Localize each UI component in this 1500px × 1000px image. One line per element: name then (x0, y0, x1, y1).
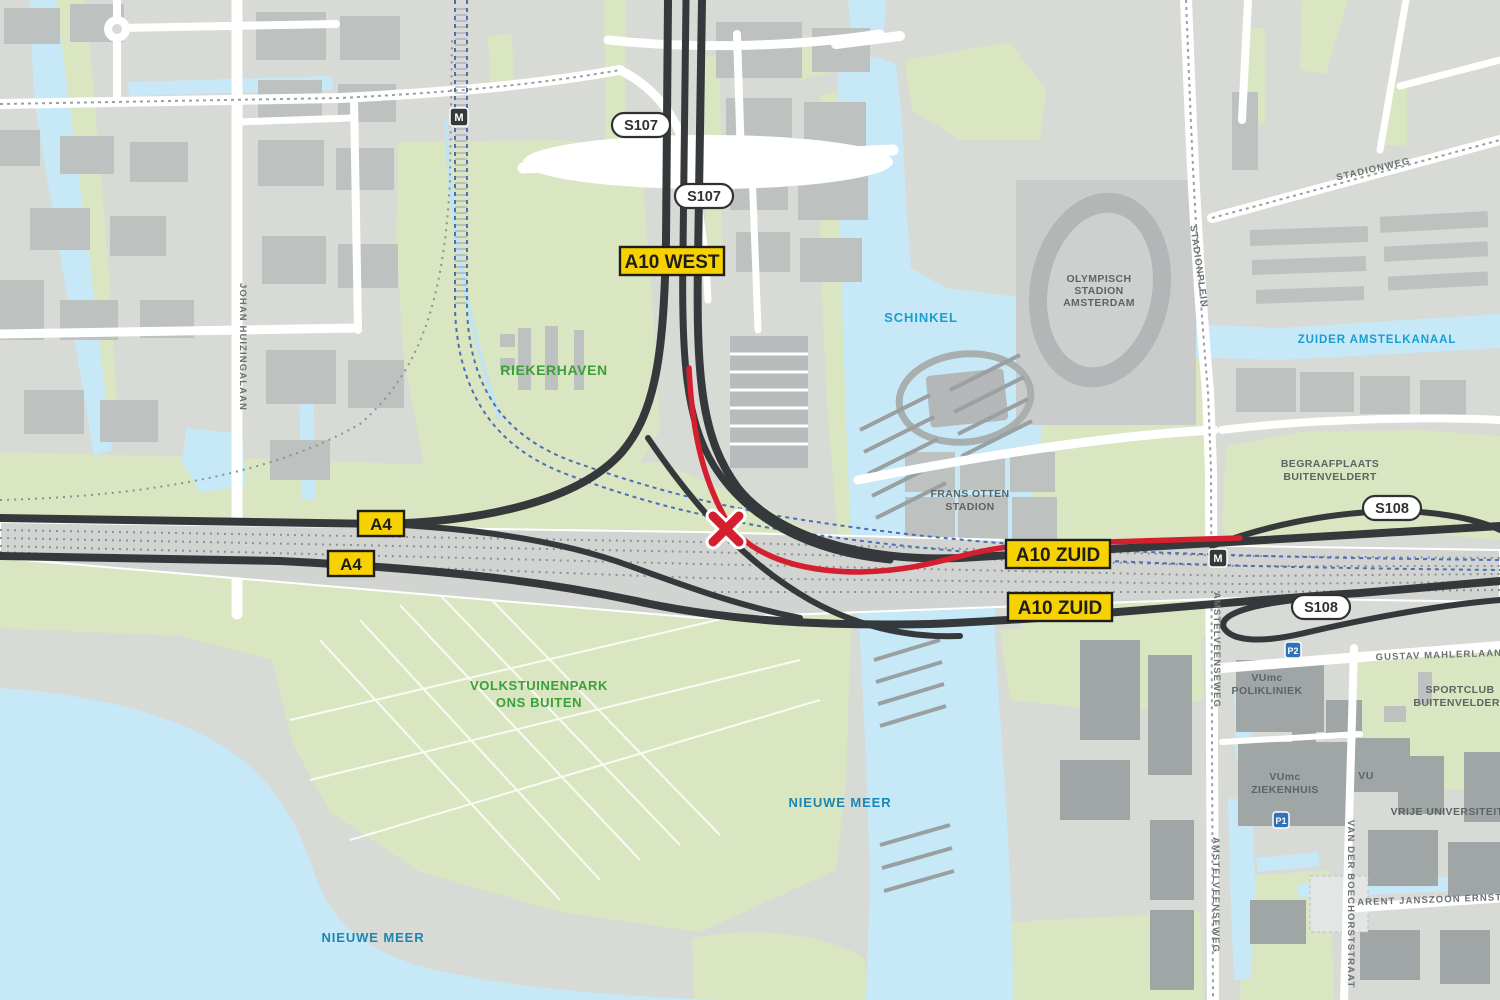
closure-map: S107 S107 S108 S108 A10 WEST A4 A4 A10 Z… (0, 0, 1500, 1000)
label-begraafplaats: BEGRAAFPLAATS (1281, 458, 1379, 470)
label-vrije-universiteit: VRIJE UNIVERSITEIT (1391, 806, 1500, 818)
badge-a4-2: A4 (328, 551, 374, 576)
svg-text:S108: S108 (1304, 600, 1338, 616)
svg-text:S107: S107 (624, 118, 658, 134)
label-vumc-ziekenhuis: VUmc (1269, 771, 1300, 783)
label-frans-otten: FRANS OTTEN (930, 488, 1009, 500)
rowhouses (730, 336, 808, 468)
svg-text:POLIKLINIEK: POLIKLINIEK (1232, 685, 1303, 697)
badge-a10-zuid-2: A10 ZUID (1008, 593, 1112, 621)
svg-text:S107: S107 (687, 189, 721, 205)
svg-text:BUITENVELDERT: BUITENVELDERT (1283, 471, 1376, 483)
closure-x-marker (713, 516, 739, 542)
metro-station-icon-1: M (450, 108, 468, 126)
label-van-der-boechorststraat: VAN DER BOECHORSTSTRAAT (1345, 820, 1356, 989)
svg-text:A10 ZUID: A10 ZUID (1018, 598, 1102, 619)
parking-icon-p2: P2 (1285, 642, 1301, 658)
map-canvas: S107 S107 S108 S108 A10 WEST A4 A4 A10 Z… (0, 0, 1500, 1000)
shield-s108-2: S108 (1292, 595, 1350, 619)
svg-text:STADION: STADION (1074, 285, 1123, 297)
label-amstelveenseweg-north: AMSTELVEENSEWEG (1211, 592, 1222, 708)
metro-station-icon-2: M (1209, 549, 1227, 567)
svg-text:A10 WEST: A10 WEST (624, 252, 719, 273)
badge-a4-1: A4 (358, 511, 404, 536)
label-johan-huizingalaan: JOHAN HUIZINGALAAN (237, 283, 248, 411)
shield-s108-1: S108 (1363, 496, 1421, 520)
badge-a10-west: A10 WEST (620, 247, 724, 275)
label-riekerhaven: RIEKERHAVEN (500, 362, 607, 378)
parking-icon-p1: P1 (1273, 812, 1289, 828)
svg-text:STADION: STADION (945, 501, 994, 513)
label-nieuwe-meer-east: NIEUWE MEER (788, 795, 891, 810)
label-sportclub: SPORTCLUB (1426, 684, 1495, 696)
label-vu: VU (1358, 770, 1373, 782)
svg-text:P2: P2 (1287, 646, 1298, 656)
label-olympisch: OLYMPISCH (1066, 273, 1131, 285)
shield-s107-1: S107 (612, 113, 670, 137)
label-zuider-amstelkanaal: ZUIDER AMSTELKANAAL (1298, 334, 1457, 346)
svg-text:M: M (1213, 553, 1222, 565)
shield-s107-2: S107 (675, 184, 733, 208)
label-amstelveenseweg-south: AMSTELVEENSEWEG (1210, 837, 1221, 953)
badge-a10-zuid-1: A10 ZUID (1006, 540, 1110, 568)
svg-text:M: M (454, 112, 463, 124)
svg-text:S108: S108 (1375, 501, 1409, 517)
svg-text:AMSTERDAM: AMSTERDAM (1063, 297, 1135, 309)
svg-text:P1: P1 (1275, 816, 1286, 826)
svg-text:A4: A4 (340, 555, 362, 574)
label-vumc-polikliniek: VUmc (1251, 672, 1282, 684)
label-volkstuinenpark: VOLKSTUINENPARK (470, 678, 608, 693)
svg-text:A4: A4 (370, 515, 392, 534)
label-schinkel: SCHINKEL (884, 310, 958, 325)
label-nieuwe-meer-west: NIEUWE MEER (321, 930, 424, 945)
label-ons-buiten: ONS BUITEN (496, 695, 582, 710)
svg-text:A10 ZUID: A10 ZUID (1016, 545, 1100, 566)
svg-text:BUITENVELDERT: BUITENVELDERT (1413, 697, 1500, 709)
svg-text:ZIEKENHUIS: ZIEKENHUIS (1251, 784, 1319, 796)
